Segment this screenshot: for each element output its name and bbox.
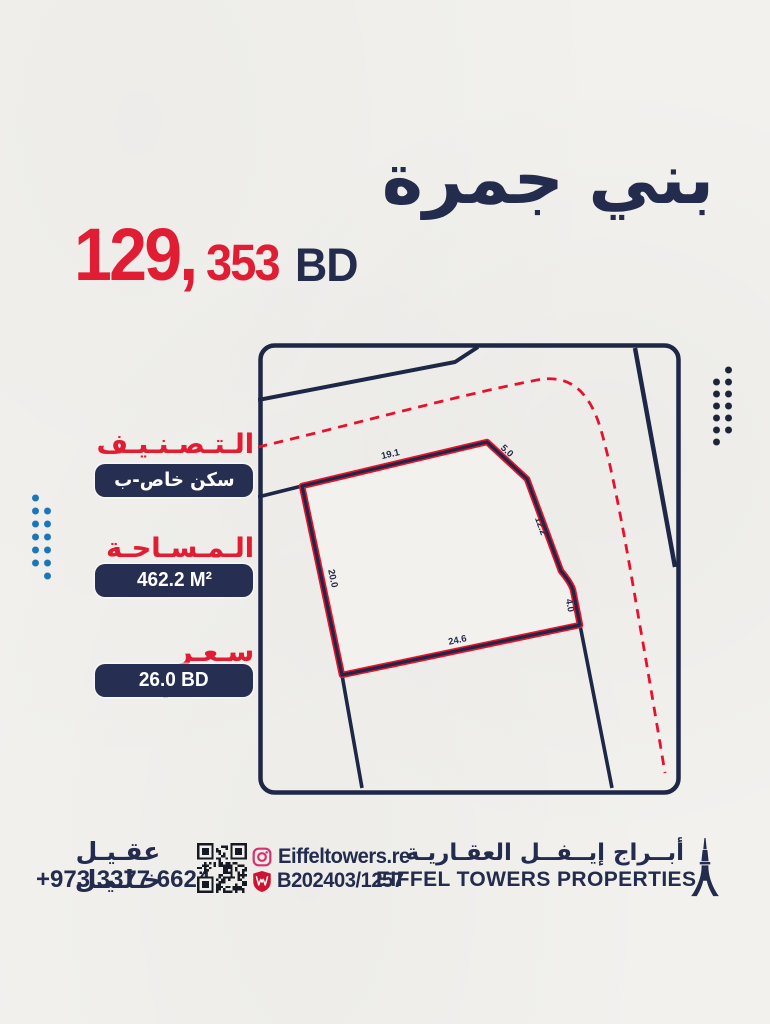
- area-value-pill: 462.2 M²: [95, 564, 253, 597]
- plot-map: 19.1 5.0 12.2 4.0 24.6 20.0: [258, 343, 681, 795]
- dots-pattern-left-col2: [43, 505, 52, 583]
- plot-map-drawing: 19.1 5.0 12.2 4.0 24.6 20.0: [258, 343, 681, 795]
- classification-label: الـتـصـنـيـف: [78, 430, 254, 460]
- price-per-foot-value: 26.0 BD: [139, 664, 209, 697]
- road-line-right: [635, 348, 675, 567]
- eiffel-tower-logo: [690, 831, 720, 905]
- road-line-topleft: [258, 347, 478, 400]
- page-title: بني جمرة: [294, 134, 714, 225]
- agent-phone[interactable]: +973 3377 6624: [36, 866, 196, 894]
- classification-value-pill: سكن خاص-ب: [95, 464, 253, 497]
- area-value: 462.2 M²: [137, 564, 212, 597]
- company-name-english: EIFFEL TOWERS PROPERTIES: [376, 868, 686, 892]
- price-minor: 353: [206, 243, 279, 284]
- qr-code[interactable]: [197, 842, 247, 894]
- area-label: الـمـسـاحـة: [78, 534, 254, 564]
- qr-code-image: [197, 842, 247, 894]
- dim-top: 19.1: [380, 447, 401, 462]
- price-currency: BD: [295, 246, 358, 284]
- dots-pattern-right-col1: [712, 376, 721, 448]
- price: 129,353BD: [74, 226, 361, 284]
- price-major: 129,: [74, 226, 195, 284]
- company-name-arabic: أبــراج إيــفــل العقـاريـة: [384, 840, 684, 866]
- dots-pattern-right-col2: [724, 364, 733, 436]
- license-shield-icon: [253, 871, 271, 892]
- dots-pattern-left-col1: [31, 492, 40, 570]
- price-per-foot-value-pill: 26.0 BD: [95, 664, 253, 697]
- classification-value: سكن خاص-ب: [114, 464, 234, 497]
- property-flyer: بني جمرة 129,353BD الـتـصـنـيـف سكن خاص-…: [0, 0, 770, 1024]
- instagram-icon: [252, 847, 272, 867]
